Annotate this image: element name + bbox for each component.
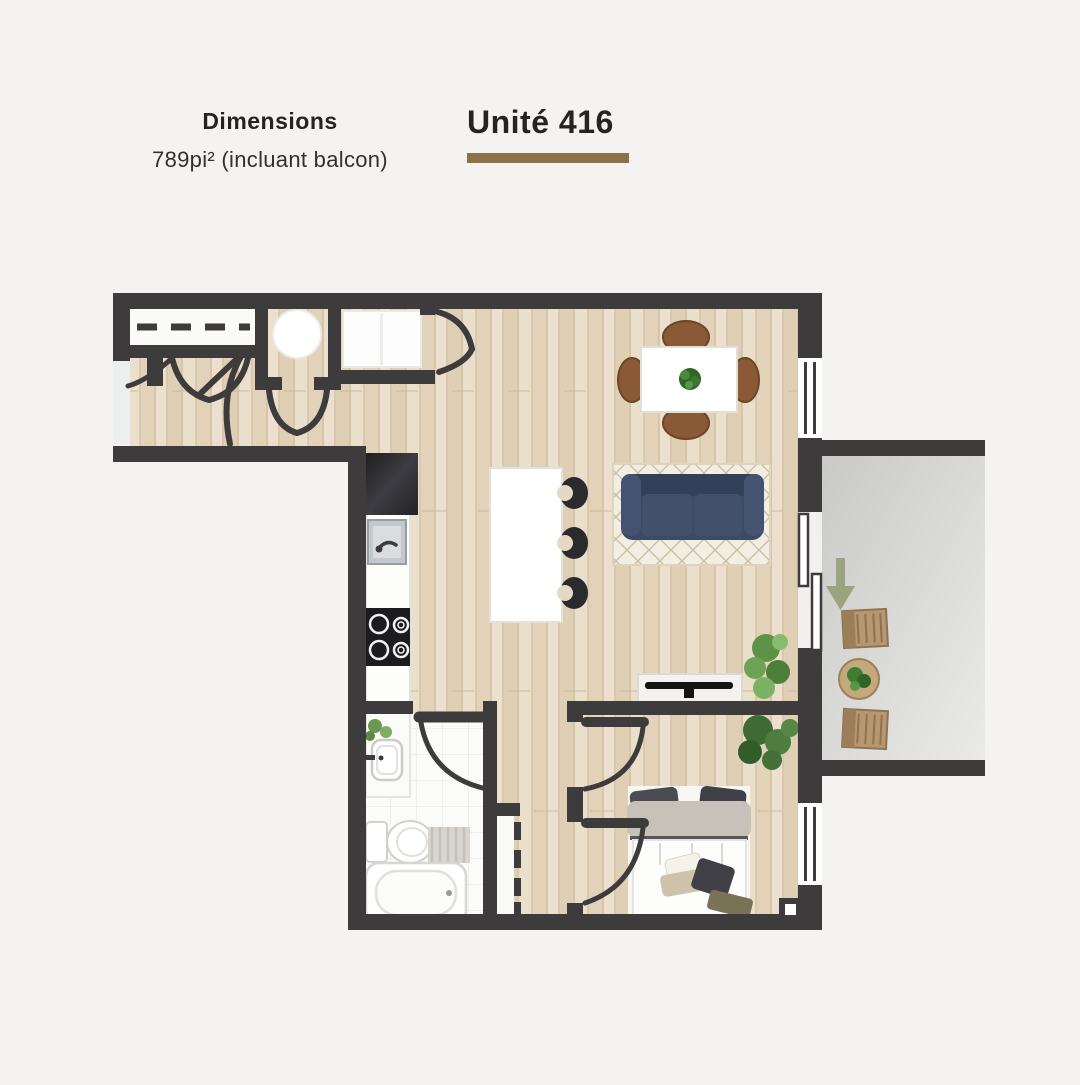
toilet (366, 821, 433, 863)
bath-mat (428, 827, 470, 863)
entry-opening (113, 361, 130, 444)
balcony-wall-top (820, 440, 985, 456)
sofa (621, 474, 764, 540)
wall-hall-bottom (113, 446, 366, 462)
hall-closet-floor (497, 816, 514, 914)
tv (645, 682, 733, 689)
wall-bottom (348, 914, 822, 930)
balcony-wall-bottom (820, 760, 985, 776)
vanity (365, 713, 410, 797)
kitchen-counter-run (363, 453, 418, 702)
wall-closet1-bottom (113, 345, 255, 358)
window-bedroom (798, 803, 822, 885)
balcony-table (839, 659, 879, 699)
floor-plan (0, 0, 1080, 1080)
tv-console (638, 674, 742, 702)
balcony-chair (842, 609, 888, 648)
refrigerator (364, 453, 418, 515)
washer-dryer-seam (380, 313, 383, 365)
wall-closet-stub (483, 803, 520, 816)
floor-box-inner (785, 904, 796, 915)
cooktop (363, 608, 410, 666)
wall-top (113, 293, 822, 309)
water-heater (273, 310, 321, 358)
wall-divider1 (255, 293, 268, 390)
balcony-chair (842, 709, 888, 749)
window-dining (798, 358, 822, 438)
bar-stools (557, 477, 588, 609)
floor-plan-svg (0, 0, 1080, 1080)
wall-bedroom-top (573, 701, 798, 715)
kitchen-island (490, 468, 562, 622)
wall-laundry-bottom (328, 370, 435, 384)
sliding-balcony-door (798, 500, 822, 660)
kitchen-sink (368, 520, 406, 564)
wall-left-lower (348, 446, 366, 930)
bed (627, 785, 754, 920)
table-plant (679, 368, 701, 390)
